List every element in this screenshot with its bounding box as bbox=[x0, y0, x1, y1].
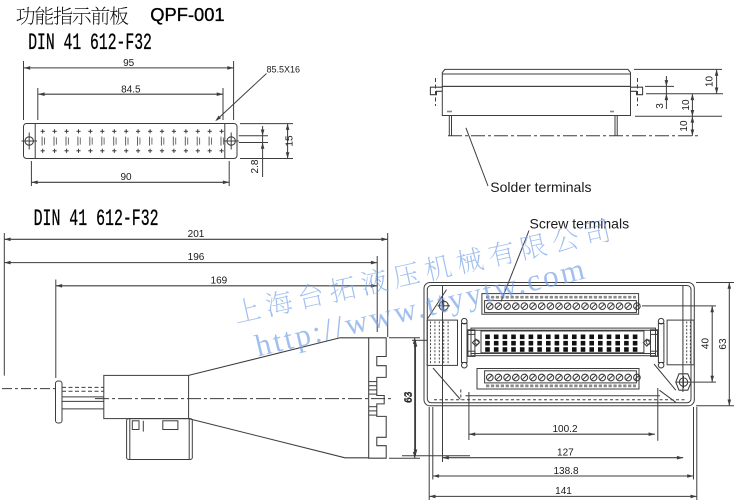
svg-text:95: 95 bbox=[123, 58, 135, 69]
svg-text:15: 15 bbox=[285, 135, 296, 147]
svg-text:201: 201 bbox=[188, 229, 205, 240]
svg-text:10: 10 bbox=[679, 120, 690, 132]
svg-text:138.8: 138.8 bbox=[553, 466, 578, 477]
svg-text:QPF-001: QPF-001 bbox=[150, 4, 224, 25]
svg-text:169: 169 bbox=[211, 275, 228, 286]
svg-text:196: 196 bbox=[188, 252, 205, 263]
svg-text:10: 10 bbox=[681, 99, 692, 111]
svg-text:2.8: 2.8 bbox=[250, 159, 261, 173]
svg-text:3: 3 bbox=[655, 103, 666, 109]
svg-text:141: 141 bbox=[555, 486, 572, 497]
svg-text:85.5X16: 85.5X16 bbox=[267, 65, 301, 75]
svg-text:DIN 41 612-F32: DIN 41 612-F32 bbox=[34, 206, 159, 232]
svg-text:10: 10 bbox=[705, 76, 716, 88]
svg-text:100.2: 100.2 bbox=[552, 424, 577, 435]
svg-text:DIN 41 612-F32: DIN 41 612-F32 bbox=[28, 30, 152, 56]
svg-text:Solder terminals: Solder terminals bbox=[490, 179, 591, 195]
svg-text:127: 127 bbox=[557, 448, 574, 459]
svg-text:Screw terminals: Screw terminals bbox=[530, 216, 630, 232]
svg-text:63: 63 bbox=[718, 338, 729, 350]
svg-text:90: 90 bbox=[120, 172, 132, 183]
svg-text:40: 40 bbox=[701, 338, 712, 350]
svg-text:84.5: 84.5 bbox=[121, 85, 141, 96]
svg-text:63: 63 bbox=[404, 392, 415, 404]
